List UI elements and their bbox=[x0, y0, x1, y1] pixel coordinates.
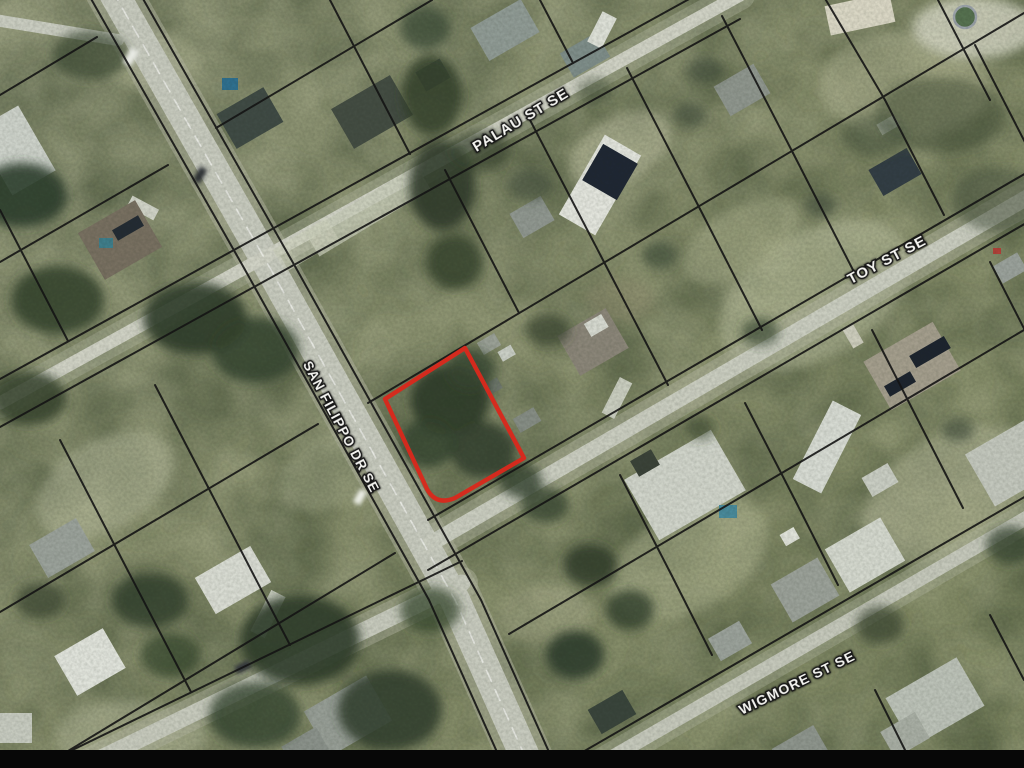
aerial-photo: PALAU ST SE TOY ST SE SAN FILIPPO DR SE … bbox=[0, 0, 1024, 768]
aerial-map-viewport: PALAU ST SE TOY ST SE SAN FILIPPO DR SE … bbox=[0, 0, 1024, 768]
letterbox-bar bbox=[0, 750, 1024, 768]
